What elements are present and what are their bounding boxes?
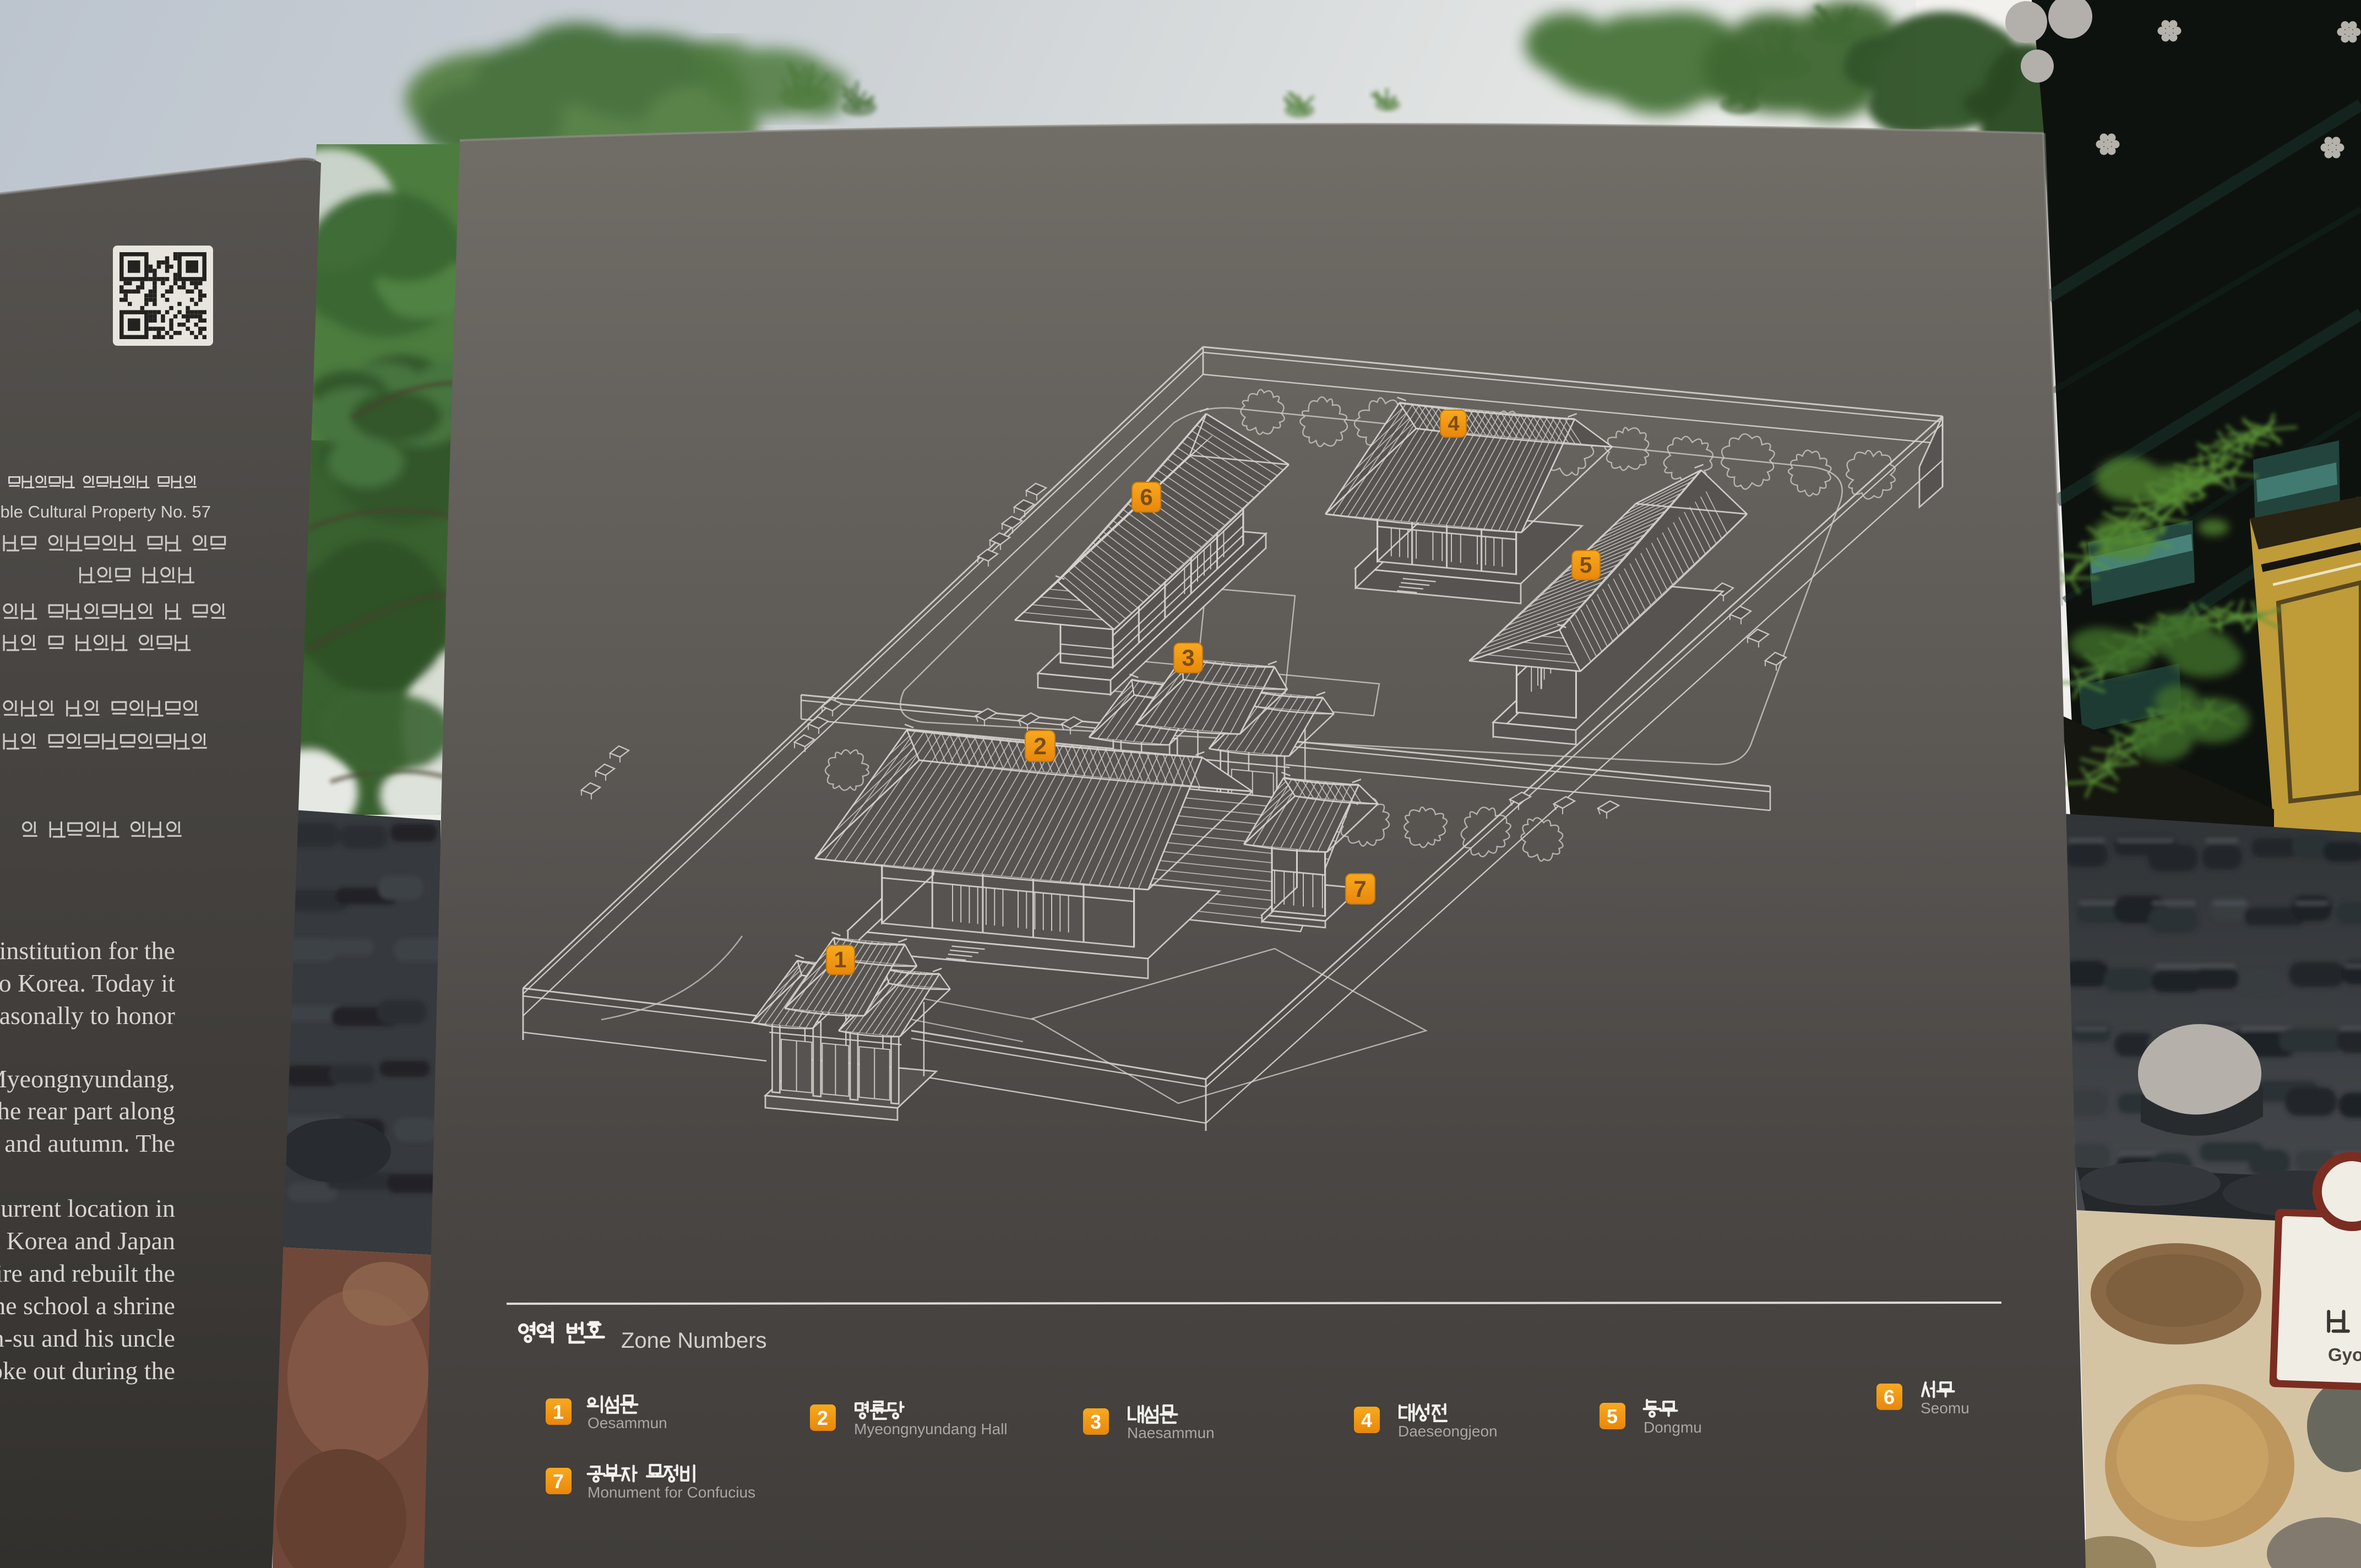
svg-text:current location in: current location in: [0, 1194, 175, 1222]
svg-text:Naesammun: Naesammun: [1127, 1424, 1215, 1441]
svg-text:4: 4: [1448, 412, 1459, 435]
svg-text:Gyo: Gyo: [2328, 1344, 2361, 1365]
svg-text:1: 1: [834, 947, 847, 972]
svg-text:4: 4: [1361, 1409, 1372, 1431]
svg-text:en Korea and Japan: en Korea and Japan: [0, 1227, 175, 1255]
svg-text:6: 6: [1884, 1386, 1895, 1408]
svg-text:nal institution for the: nal institution for the: [0, 937, 175, 965]
svg-text:Monument for Confucius: Monument for Confucius: [587, 1484, 755, 1501]
svg-text:3: 3: [1090, 1411, 1101, 1433]
svg-text:6: 6: [1140, 484, 1152, 510]
svg-text:ng and autumn. The: ng and autumn. The: [0, 1129, 175, 1157]
svg-text:5: 5: [1607, 1405, 1618, 1428]
svg-text:gible Cultural Property No. 57: gible Cultural Property No. 57: [0, 502, 211, 521]
svg-text:Seomu: Seomu: [1921, 1400, 1970, 1417]
svg-text:1: 1: [553, 1401, 564, 1423]
svg-text:2: 2: [1033, 733, 1047, 760]
svg-text:Myeongnyundang Hall: Myeongnyundang Hall: [854, 1420, 1008, 1438]
svg-text:oke out during the: oke out during the: [0, 1357, 175, 1385]
svg-text:on-su and his uncle: on-su and his uncle: [0, 1324, 175, 1352]
svg-text:the school a shrine: the school a shrine: [0, 1292, 175, 1320]
svg-text:5: 5: [1580, 552, 1592, 578]
svg-text:2: 2: [817, 1407, 828, 1429]
svg-text:n the rear part along: n the rear part along: [0, 1097, 175, 1125]
svg-text:l, Myeongnyundang,: l, Myeongnyundang,: [0, 1065, 175, 1093]
svg-text:Daeseongjeon: Daeseongjeon: [1398, 1423, 1498, 1440]
svg-text:fire and rebuilt the: fire and rebuilt the: [0, 1259, 175, 1287]
svg-text:m to Korea. Today it: m to Korea. Today it: [0, 969, 175, 997]
svg-text:3: 3: [1182, 645, 1194, 671]
svg-text:Zone Numbers: Zone Numbers: [621, 1329, 767, 1353]
svg-text:seasonally to honor: seasonally to honor: [0, 1001, 175, 1030]
svg-text:7: 7: [1353, 876, 1366, 902]
svg-text:Oesammun: Oesammun: [587, 1414, 667, 1431]
svg-text:Dongmu: Dongmu: [1644, 1419, 1702, 1436]
svg-text:7: 7: [553, 1470, 564, 1493]
